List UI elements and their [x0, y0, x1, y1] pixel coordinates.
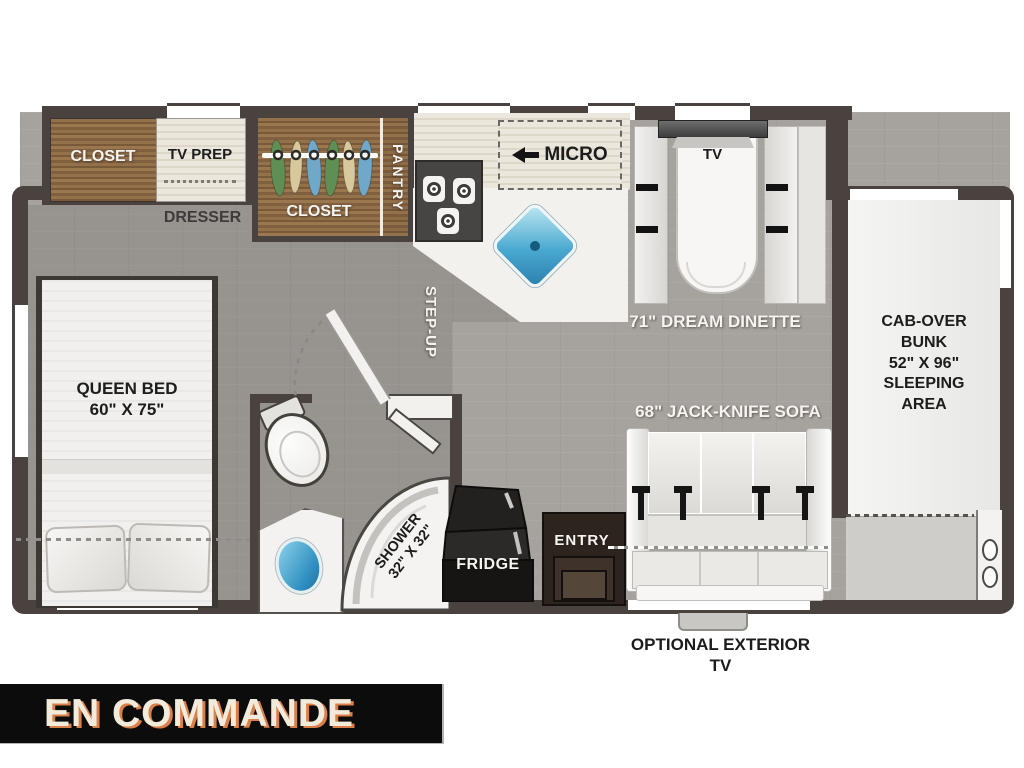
sofa-lower-bench [632, 551, 828, 589]
sofa-slideout-dashed-line [608, 546, 828, 549]
seatbelt-marker [766, 184, 788, 191]
window-cabover-top-line [850, 186, 958, 189]
pillow [45, 525, 127, 594]
entry-step-inner [561, 570, 607, 600]
window-bottom-1-line [57, 610, 198, 614]
window-cabover-top [850, 188, 958, 200]
microwave-area: MICRO [498, 120, 622, 190]
dresser-label: DRESSER [150, 208, 255, 228]
sofa-back-cushions [648, 432, 806, 514]
seatbelt-marker [766, 226, 788, 233]
stove-icon [415, 160, 483, 242]
seatbelt-marker [638, 490, 644, 520]
slideout-wall-left [42, 106, 50, 202]
pantry-label: PANTRY [388, 122, 406, 234]
tv-prep-drawer-line [164, 180, 236, 183]
exterior-tv-bracket [678, 613, 748, 631]
window-right-line [1011, 200, 1014, 288]
dinette-bench-right [764, 126, 798, 304]
window-top-1-line [167, 103, 240, 106]
seatbelt-marker [802, 490, 808, 520]
tv-label: TV [685, 146, 740, 165]
sofa-seat [648, 514, 806, 548]
bedroom-slideout-dashed-line [16, 538, 260, 541]
exterior-tv-label: OPTIONAL EXTERIOR TV [618, 634, 823, 677]
fridge-label: FRIDGE [444, 556, 532, 574]
dinette-side-panel [798, 126, 826, 304]
micro-label: MICRO [544, 143, 607, 167]
sofa-front-bar [636, 585, 824, 601]
queen-bed-label: QUEEN BED 60" X 75" [36, 378, 218, 421]
bathroom-door [268, 298, 398, 410]
left-arrow-icon [512, 147, 539, 163]
window-left-line [12, 305, 15, 457]
closet-left-label: CLOSET [50, 148, 156, 166]
step-up-label: STEP-UP [419, 266, 439, 378]
pillow [127, 523, 211, 594]
closet-mid-wall-bottom [252, 236, 414, 242]
cup-holders-icon [978, 510, 1002, 600]
cab-side-console [976, 510, 1002, 600]
wall-cabover-separator [832, 196, 848, 518]
queen-bed: QUEEN BED 60" X 75" [36, 276, 218, 608]
dinette-bench-left [634, 126, 668, 304]
cab-over-label: CAB-OVER BUNK 52" X 96" SLEEPING AREA [848, 312, 1000, 416]
blanket-fold [42, 459, 212, 474]
status-banner-text: EN COMMANDE [44, 692, 354, 736]
hangers-icon [262, 120, 378, 210]
window-top-3-line [588, 103, 635, 106]
dinette-label: 71" DREAM DINETTE [624, 312, 806, 332]
window-top-4-line [675, 103, 750, 106]
window-top-2-line [418, 103, 510, 106]
status-banner: EN COMMANDE [0, 684, 444, 744]
tv-prep-label: TV PREP [156, 146, 244, 165]
closet-mid-label: CLOSET [258, 203, 380, 221]
sofa-label: 68" JACK-KNIFE SOFA [623, 402, 833, 422]
cab-area [846, 517, 976, 600]
tv-unit [658, 120, 768, 138]
seatbelt-marker [636, 226, 658, 233]
seatbelt-marker [680, 490, 686, 520]
seatbelt-marker [758, 490, 764, 520]
floorplan-screenshot: CLOSET TV PREP DRESSER CLOSET PANTRY [0, 0, 1024, 768]
seatbelt-marker [636, 184, 658, 191]
fridge-unit [442, 482, 534, 602]
